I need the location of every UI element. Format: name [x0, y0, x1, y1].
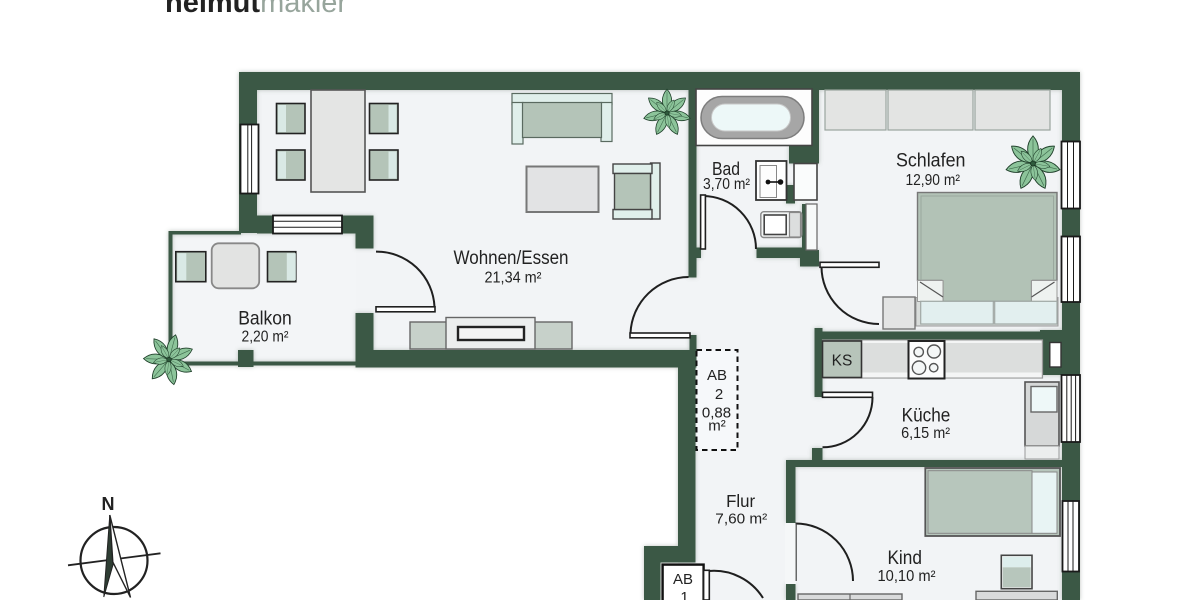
svg-text:Wohnen/Essen: Wohnen/Essen: [454, 248, 569, 269]
svg-text:AB: AB: [707, 367, 727, 384]
svg-text:helmutmakler: helmutmakler: [165, 0, 347, 19]
svg-text:2: 2: [715, 386, 723, 403]
svg-text:12,90 m²: 12,90 m²: [905, 172, 960, 189]
svg-text:3,70 m²: 3,70 m²: [703, 176, 750, 193]
svg-text:Kind: Kind: [887, 548, 922, 569]
svg-text:AB: AB: [673, 571, 693, 588]
svg-text:21,34 m²: 21,34 m²: [485, 270, 542, 287]
svg-text:Schlafen: Schlafen: [896, 151, 966, 172]
svg-text:6,15 m²: 6,15 m²: [901, 425, 950, 442]
svg-text:2,20 m²: 2,20 m²: [242, 328, 289, 345]
svg-text:N: N: [102, 494, 115, 514]
svg-text:Küche: Küche: [902, 406, 951, 427]
svg-text:KS: KS: [832, 353, 853, 370]
svg-text:m²: m²: [708, 418, 726, 435]
svg-text:1: 1: [680, 589, 688, 600]
svg-text:Flur: Flur: [726, 491, 755, 511]
svg-text:Balkon: Balkon: [238, 308, 292, 330]
svg-text:7,60 m²: 7,60 m²: [715, 512, 767, 528]
svg-text:10,10 m²: 10,10 m²: [878, 568, 936, 585]
